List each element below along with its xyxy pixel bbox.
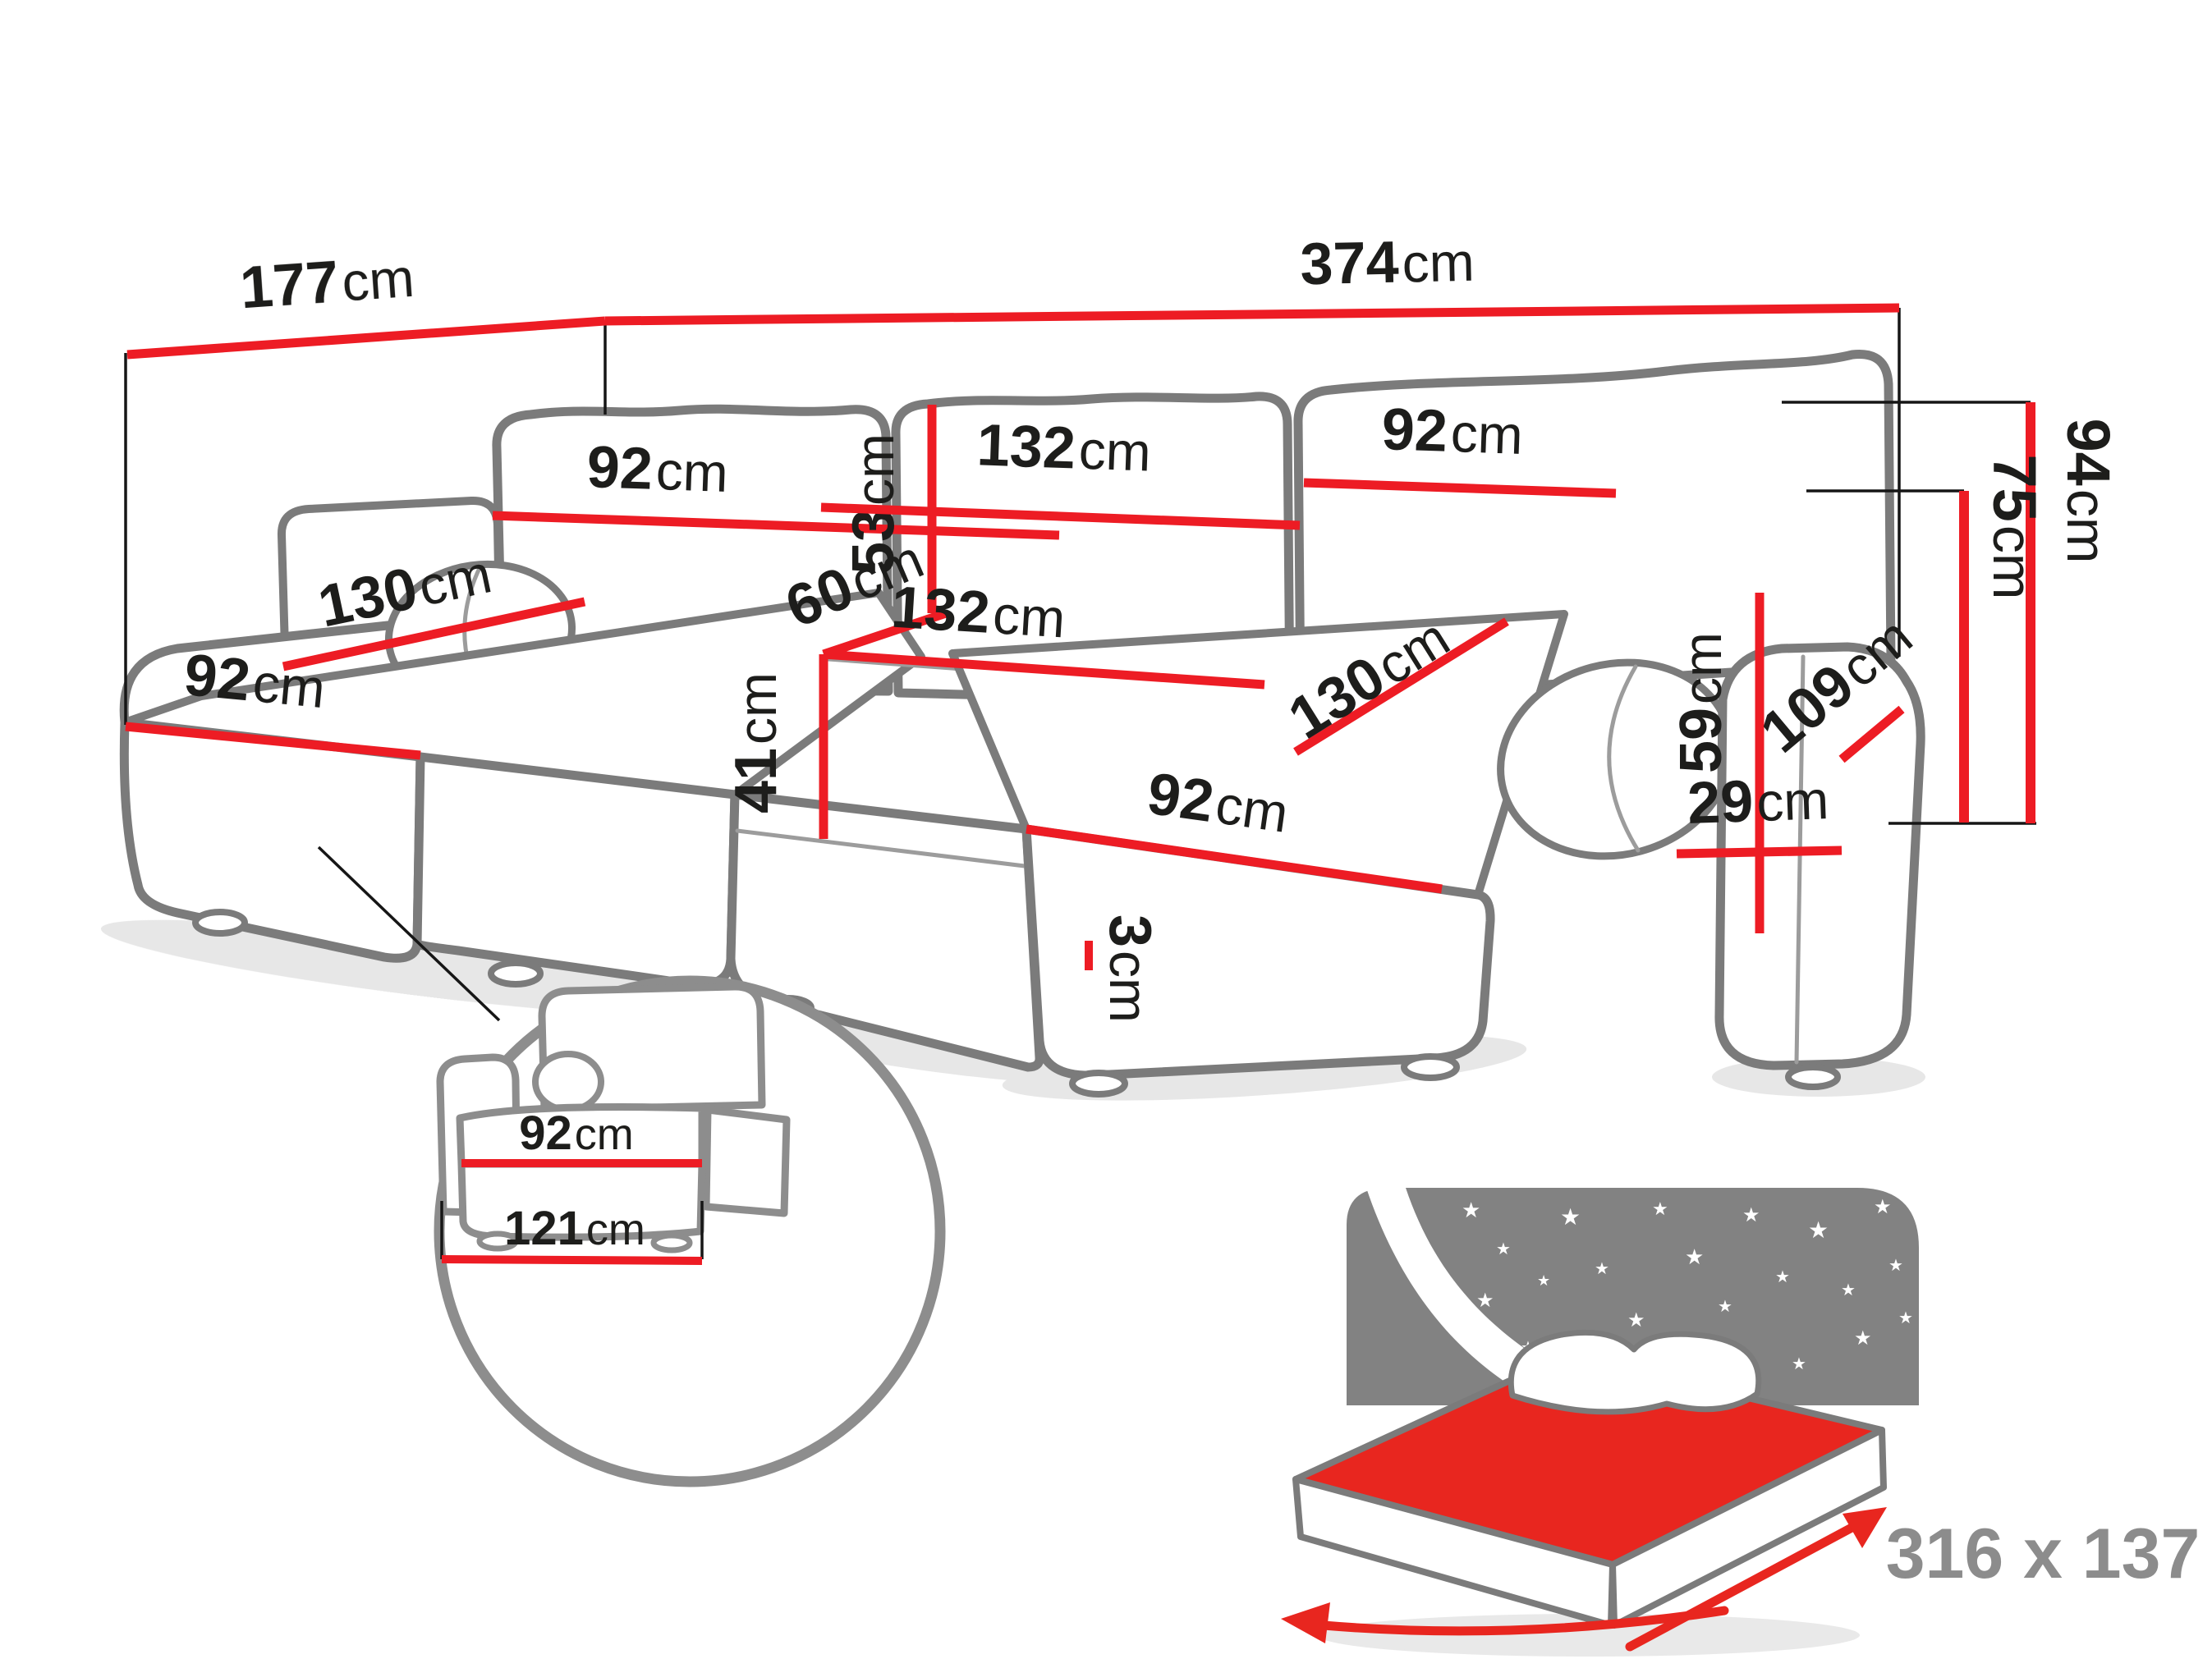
inset-right-fragment [706,1110,787,1213]
bed-size-label: 316 x 137 [1886,1515,2201,1593]
svg-text:★: ★ [1808,1217,1829,1243]
svg-text:★: ★ [1792,1355,1806,1373]
svg-text:177cm: 177cm [238,244,416,322]
svg-text:★: ★ [1560,1204,1581,1230]
svg-text:92cm: 92cm [1380,396,1524,467]
svg-text:94cm: 94cm [2054,419,2123,564]
svg-text:★: ★ [1462,1198,1480,1222]
svg-text:★: ★ [1888,1257,1903,1275]
svg-text:374cm: 374cm [1300,228,1475,297]
svg-text:★: ★ [1841,1281,1856,1299]
svg-text:★: ★ [1652,1198,1668,1219]
sofa-dimension-diagram: 177cm 374cm 92cm 53cm 132cm [0,0,2212,1659]
svg-text:132cm: 132cm [975,412,1152,483]
dimension-177: 177cm [127,244,605,355]
svg-text:★: ★ [1685,1244,1704,1269]
svg-text:★: ★ [1718,1298,1732,1316]
svg-text:★: ★ [1496,1240,1511,1258]
dimension-3: 3cm [1089,914,1163,1023]
svg-text:59cm: 59cm [1668,632,1734,773]
svg-text:92cm: 92cm [585,434,729,505]
svg-text:★: ★ [1742,1204,1760,1226]
inset-bolster [535,1054,601,1110]
svg-text:41cm: 41cm [723,672,789,813]
dimension-374: 374cm [605,228,1899,321]
dimension-75: 75cm [1964,455,2049,823]
svg-text:★: ★ [1537,1272,1550,1289]
svg-text:★: ★ [1775,1268,1790,1286]
svg-text:92cm: 92cm [519,1107,634,1160]
left-chaise-side [417,757,735,984]
svg-text:75cm: 75cm [1980,455,2049,600]
svg-text:★: ★ [1627,1309,1645,1331]
svg-text:★: ★ [1898,1309,1913,1327]
svg-text:29cm: 29cm [1687,766,1830,836]
svg-text:★: ★ [1854,1327,1872,1350]
svg-text:★: ★ [1595,1260,1609,1278]
bed-function-icon: ★ ★ ★ ★ ★ ★ ★ ★ ★ ★ ★ ★ ★ ★ ★ ★ ★ ★ ★ ★ … [1281,1188,2200,1657]
detail-inset: 92cm 121cm [439,981,940,1482]
svg-text:★: ★ [1476,1290,1494,1312]
svg-text:121cm: 121cm [504,1202,645,1255]
diagram-stage: 177cm 374cm 92cm 53cm 132cm [0,0,2212,1659]
svg-text:3cm: 3cm [1097,914,1163,1023]
svg-text:★: ★ [1874,1196,1892,1218]
